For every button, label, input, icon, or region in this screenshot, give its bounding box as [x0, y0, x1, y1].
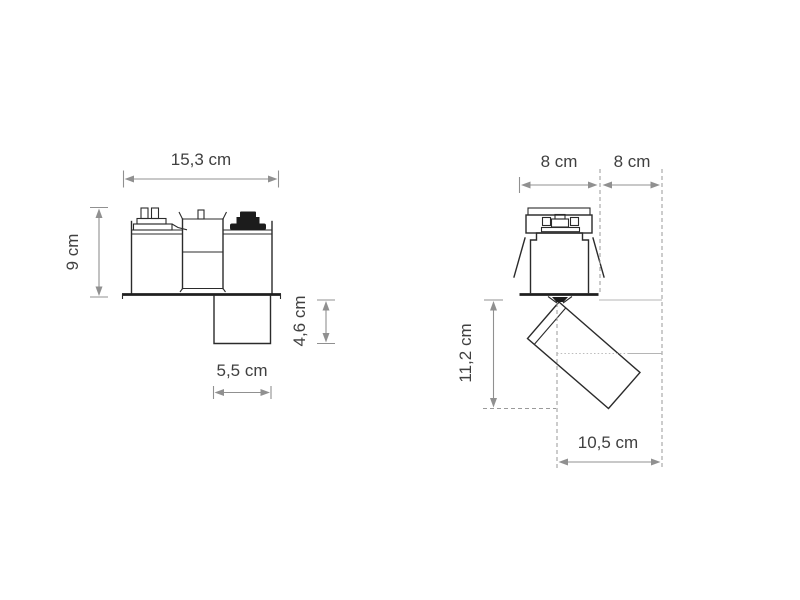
front-height-label: 9 cm [63, 234, 82, 271]
adjustment-knob [230, 212, 266, 231]
luminaire-dimension-drawing: 15,3 cm 9 cm 5,5 cm 4,6 cm [0, 0, 800, 600]
spring-clip-left [514, 238, 525, 277]
dim-head-reach: 10,5 cm [559, 433, 661, 466]
front-width-label: 15,3 cm [171, 150, 231, 169]
dim-overall-height: 9 cm [63, 208, 108, 298]
dim-trim-depth: 4,6 cm [290, 295, 335, 346]
connector-mechanism [542, 215, 580, 234]
contact-pin [198, 210, 204, 219]
side-offset-label: 8 cm [614, 152, 651, 171]
trim-width-label: 5,5 cm [216, 361, 267, 380]
upper-box [526, 215, 592, 233]
dim-side-offset: 8 cm [603, 152, 661, 189]
spot-head [528, 302, 641, 409]
top-cap [528, 208, 590, 215]
side-view: 8 cm 8 cm 11,2 cm 10,5 cm [456, 152, 662, 470]
dim-trim-width: 5,5 cm [214, 361, 272, 399]
terminal-connector [134, 208, 188, 230]
housing-width-label: 8 cm [541, 152, 578, 171]
head-reach-label: 10,5 cm [578, 433, 638, 452]
head-drop-label: 11,2 cm [456, 323, 475, 382]
spring-clip-right [593, 238, 604, 277]
housing-front [132, 222, 273, 294]
housing-body [531, 233, 589, 293]
dim-housing-width: 8 cm [520, 152, 598, 193]
dim-head-drop: 11,2 cm [456, 300, 503, 408]
lamp-adapter [179, 210, 227, 292]
dim-overall-width: 15,3 cm [124, 150, 279, 188]
trim-depth-label: 4,6 cm [290, 295, 309, 346]
trim-cylinder [214, 296, 271, 344]
housing-side [514, 208, 604, 295]
front-view: 15,3 cm 9 cm 5,5 cm 4,6 cm [63, 150, 335, 399]
mounting-plate-front [122, 294, 281, 299]
dimension-sheet: 15,3 cm 9 cm 5,5 cm 4,6 cm [0, 0, 800, 600]
